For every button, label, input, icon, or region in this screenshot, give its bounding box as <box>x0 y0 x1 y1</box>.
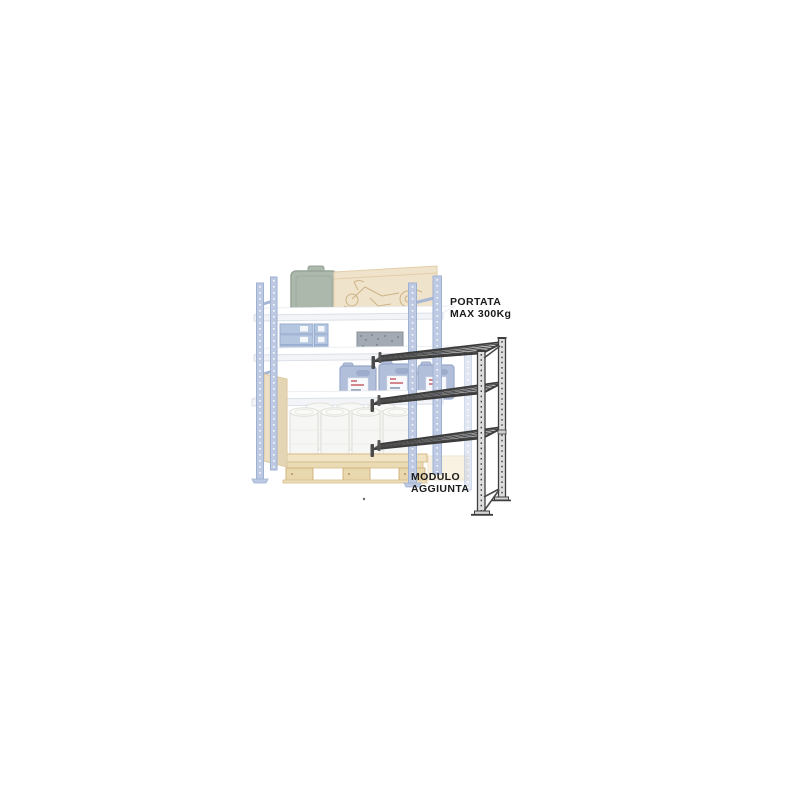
upright-ghost <box>465 352 472 490</box>
capacity-label-line2: MAX 300Kg <box>450 309 511 321</box>
existing-rack <box>252 266 472 500</box>
stray-mark <box>363 498 365 500</box>
module-label-line2: AGGIUNTA <box>411 484 469 496</box>
green-case <box>291 266 337 314</box>
shelf-top <box>254 306 455 321</box>
module-label: MODULO AGGIUNTA <box>411 472 469 496</box>
addon-upright-back <box>498 338 507 500</box>
product-illustration: PORTATA MAX 300Kg MODULO AGGIUNTA <box>0 0 800 800</box>
upright-back-right <box>433 276 442 474</box>
capacity-label: PORTATA MAX 300Kg <box>450 297 511 321</box>
addon-upright-front <box>477 351 487 514</box>
upright-back-left <box>271 277 278 470</box>
shelving-diagram <box>0 0 800 800</box>
